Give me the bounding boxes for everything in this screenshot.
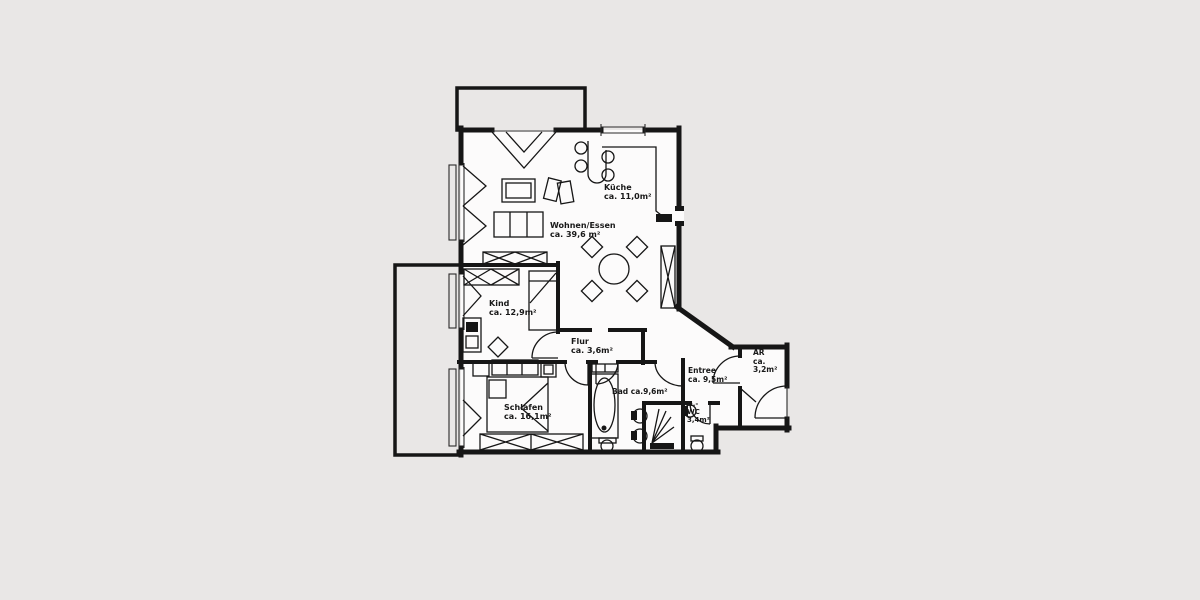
room-label-kueche: Küche ca. 11,0m²	[604, 183, 652, 201]
room-area: 3,2m²	[753, 366, 777, 375]
room-name: G.-	[687, 400, 710, 408]
room-label-ar: AR ca. 3,2m²	[753, 349, 777, 375]
room-area: ca. 39,6 m²	[550, 230, 616, 239]
room-name: Flur	[571, 337, 613, 346]
kitchen-radiator	[656, 214, 672, 222]
room-label-g-wc: G.- WC 3,4m²	[687, 400, 710, 424]
kitchen-wall-vent	[675, 209, 684, 223]
room-area: ca. 11,0m²	[604, 192, 652, 201]
room-name: Schlafen	[504, 403, 552, 412]
balcony-top	[457, 88, 585, 130]
room-label-bad: Bad ca.9,6m²	[612, 387, 668, 396]
floorplan-drawing	[0, 0, 1200, 600]
room-name: Entree	[688, 366, 727, 375]
room-label-schlafen: Schlafen ca. 16,1m²	[504, 403, 552, 421]
room-area: ca. 3,6m²	[571, 346, 613, 355]
room-area: ca. 12,9m²	[489, 308, 537, 317]
room-area: 3,4m²	[687, 416, 710, 424]
room-name: Wohnen/Essen	[550, 221, 616, 230]
room-area: ca. 9,5m²	[688, 375, 727, 384]
room-label-flur: Flur ca. 3,6m²	[571, 337, 613, 355]
room-name: WC	[687, 408, 710, 416]
room-area: ca. 16,1m²	[504, 412, 552, 421]
floorplan-canvas: Küche ca. 11,0m² Wohnen/Essen ca. 39,6 m…	[0, 0, 1200, 600]
room-name: Küche	[604, 183, 652, 192]
room-name: Kind	[489, 299, 537, 308]
room-name-area: Bad ca.9,6m²	[612, 387, 668, 396]
room-label-entree: Entree ca. 9,5m²	[688, 366, 727, 384]
room-label-kind: Kind ca. 12,9m²	[489, 299, 537, 317]
room-label-wohnen-essen: Wohnen/Essen ca. 39,6 m²	[550, 221, 616, 239]
